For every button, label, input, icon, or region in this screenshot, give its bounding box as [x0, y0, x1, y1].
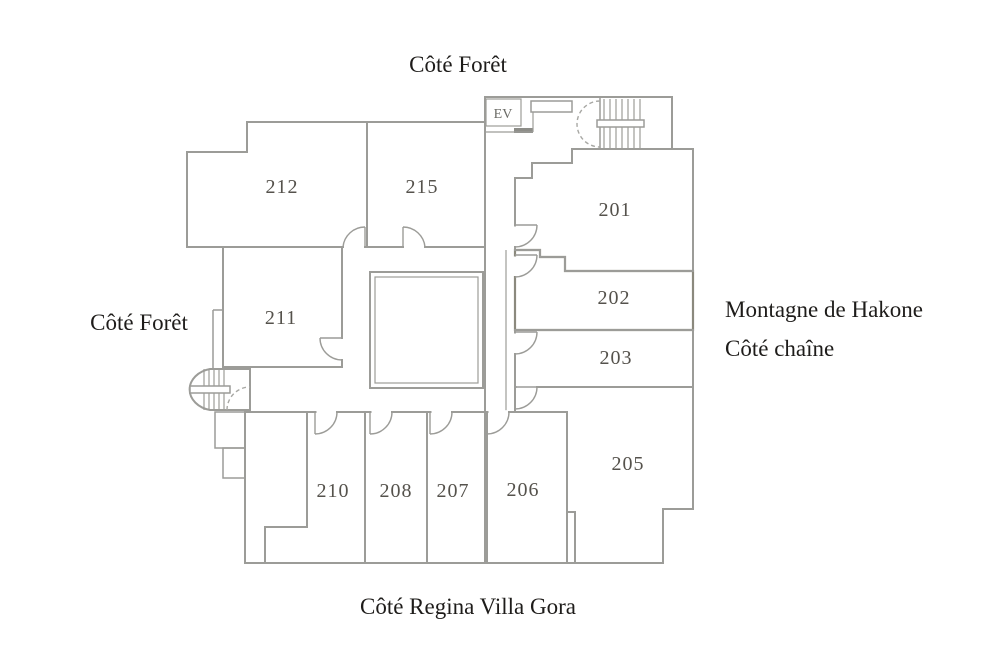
outer-wall-left	[213, 310, 223, 368]
elevator-car	[531, 101, 572, 112]
room-202-label: 202	[598, 287, 631, 309]
door-205	[515, 387, 537, 409]
door-211	[320, 338, 342, 360]
room-203-label: 203	[600, 347, 633, 369]
orientation-label-right-line1: Montagne de Hakone	[725, 297, 923, 322]
door-206	[487, 412, 509, 434]
orientation-label-top: Côté Forêt	[409, 52, 507, 77]
floor-plan-container: Côté Forêt Côté Forêt Montagne de Hakone…	[0, 0, 1000, 660]
door-207	[430, 412, 452, 434]
floor-plan-svg: Côté Forêt Côté Forêt Montagne de Hakone…	[0, 0, 1000, 660]
door-202	[515, 255, 537, 277]
courtyard	[370, 272, 483, 388]
door-210	[315, 412, 337, 434]
door-203	[515, 332, 537, 354]
door-208	[370, 412, 392, 434]
stairs-lower	[190, 369, 250, 410]
door-215	[403, 227, 425, 247]
room-215-label: 215	[406, 176, 439, 198]
service-space-shape	[245, 412, 307, 563]
room-207-label: 207	[437, 480, 470, 502]
room-205-label: 205	[612, 453, 645, 475]
door-201	[515, 225, 537, 247]
room-211-label: 211	[265, 307, 297, 329]
room-210-label: 210	[317, 480, 350, 502]
doorway-openings	[317, 227, 537, 414]
orientation-label-bottom: Côté Regina Villa Gora	[360, 594, 576, 619]
stairs-upper	[577, 97, 644, 148]
room-201-label: 201	[599, 199, 632, 221]
room-205-shape	[515, 387, 693, 563]
orientation-label-left: Côté Forêt	[90, 310, 188, 335]
doors-group	[315, 225, 537, 434]
stair-lower-handrail	[190, 386, 230, 393]
courtyard-inner	[375, 277, 478, 383]
stair-upper-handrail	[597, 120, 644, 127]
elevator-label: EV	[494, 107, 513, 122]
annex-step-2	[223, 448, 245, 478]
orientation-label-right-line2: Côté chaîne	[725, 336, 834, 361]
door-212	[343, 227, 365, 247]
room-206-label: 206	[507, 479, 540, 501]
courtyard-outer	[370, 272, 483, 388]
annex-step-1	[215, 412, 245, 448]
room-212-label: 212	[266, 176, 299, 198]
room-208-label: 208	[380, 480, 413, 502]
